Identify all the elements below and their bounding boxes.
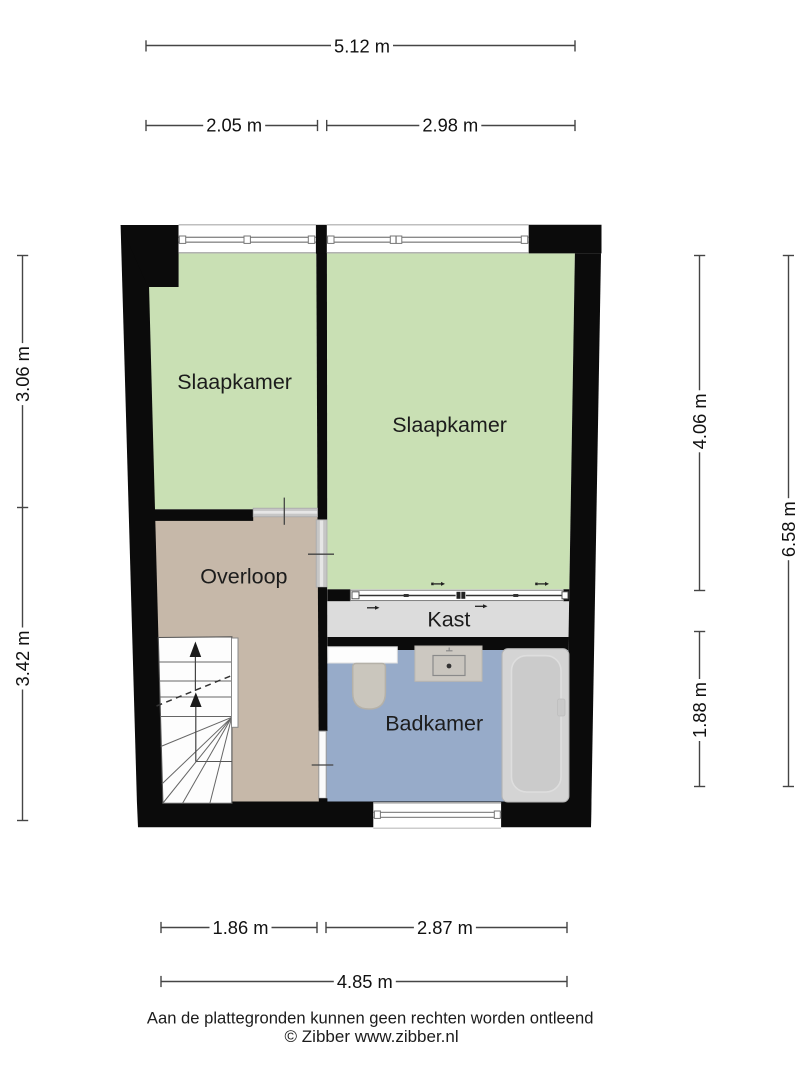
svg-text:Badkamer: Badkamer xyxy=(385,711,483,735)
svg-text:Kast: Kast xyxy=(427,608,470,632)
svg-text:Aan de plattegronden kunnen ge: Aan de plattegronden kunnen geen rechten… xyxy=(147,1008,594,1027)
svg-text:Overloop: Overloop xyxy=(200,564,287,588)
svg-text:2.98 m: 2.98 m xyxy=(422,115,478,136)
svg-text:3.06 m: 3.06 m xyxy=(12,346,33,402)
svg-text:3.42 m: 3.42 m xyxy=(12,631,33,687)
svg-text:© Zibber www.zibber.nl: © Zibber www.zibber.nl xyxy=(285,1027,459,1046)
svg-text:5.12 m: 5.12 m xyxy=(334,36,390,57)
svg-text:4.85 m: 4.85 m xyxy=(337,971,393,992)
svg-text:4.06 m: 4.06 m xyxy=(689,393,710,449)
svg-text:Slaapkamer: Slaapkamer xyxy=(392,413,507,437)
svg-text:6.58 m: 6.58 m xyxy=(778,501,799,557)
svg-text:1.88 m: 1.88 m xyxy=(689,682,710,738)
svg-text:Slaapkamer: Slaapkamer xyxy=(177,370,292,394)
svg-text:2.05 m: 2.05 m xyxy=(206,115,262,136)
svg-text:1.86 m: 1.86 m xyxy=(213,917,269,938)
svg-text:2.87 m: 2.87 m xyxy=(417,917,473,938)
